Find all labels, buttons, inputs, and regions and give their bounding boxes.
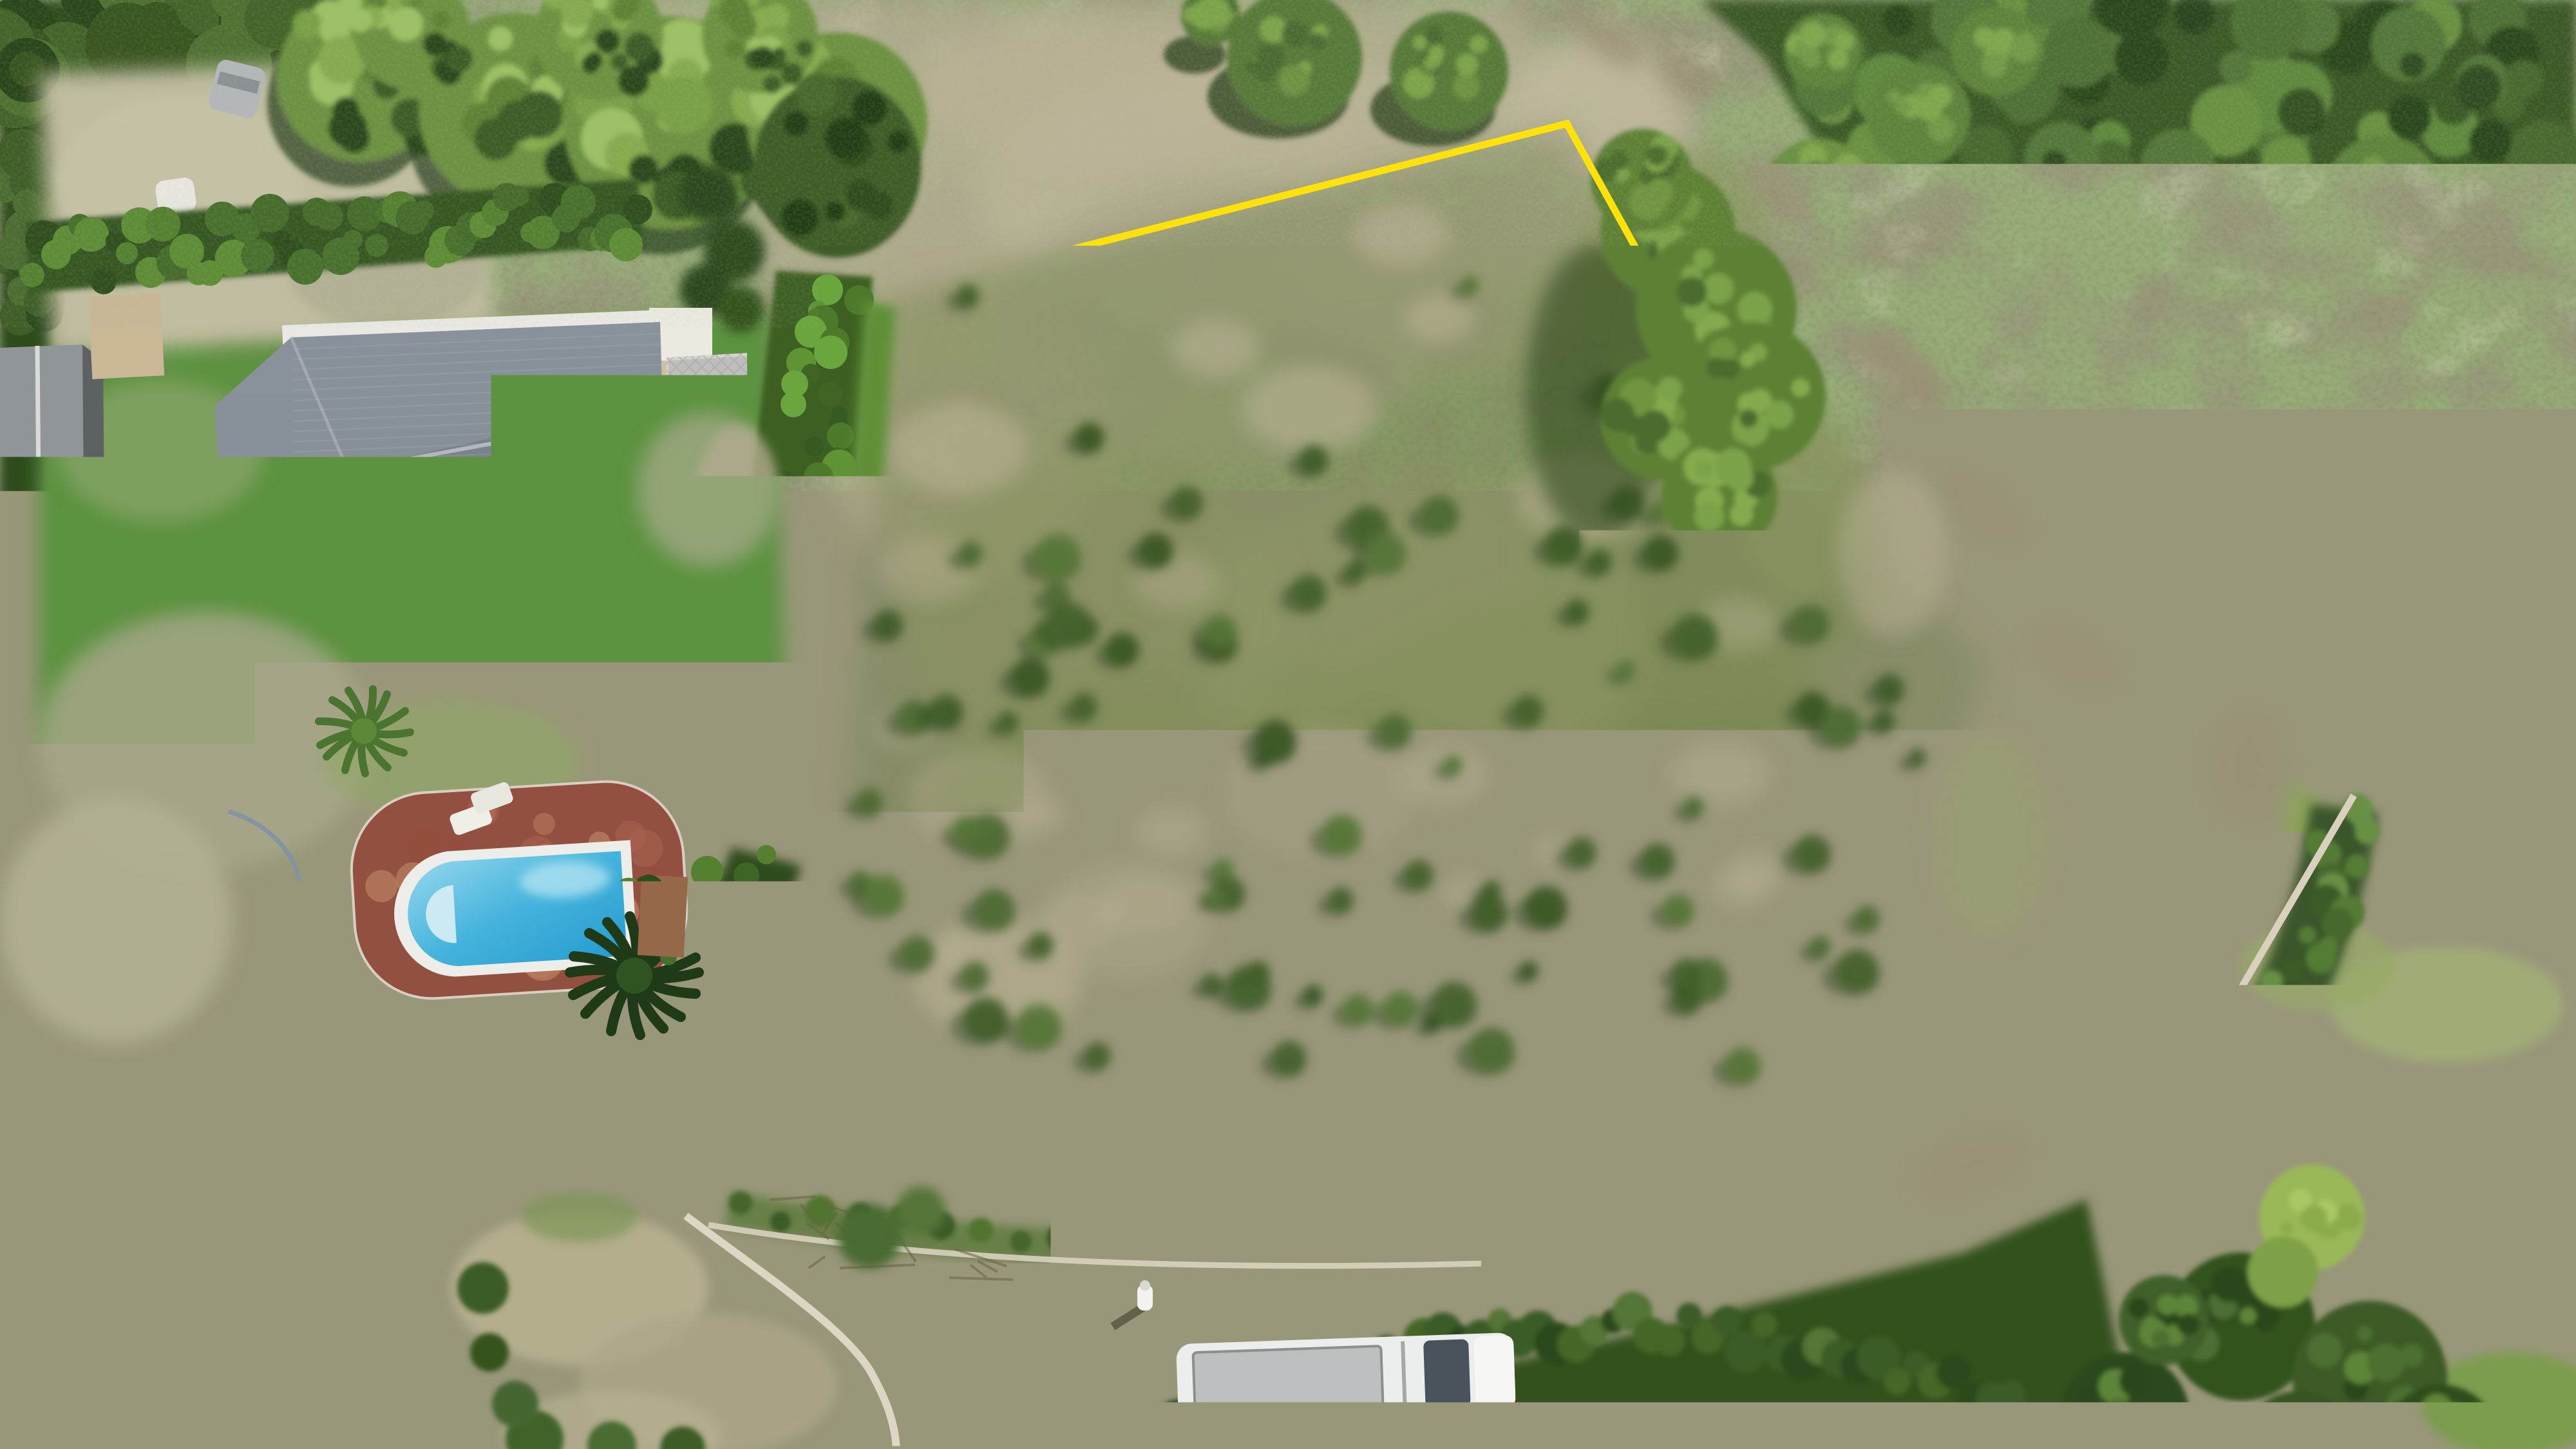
svg-text:2541m2: 2541m2 (1228, 610, 1505, 697)
